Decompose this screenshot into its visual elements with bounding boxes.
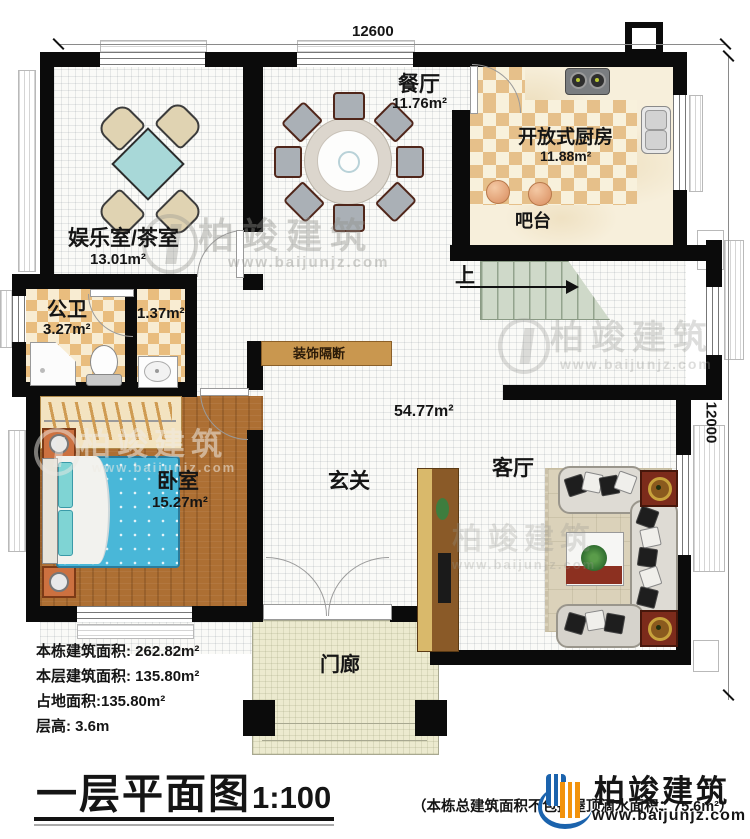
tea-room-left-sill [18,70,36,272]
porch-step-line-2 [262,740,427,741]
bar-stool-1 [486,180,510,204]
info-line-4: 层高: 3.6m [36,719,109,734]
watermark-site-living: www.baijunjz.com [452,558,596,571]
bed-pillow-2 [58,510,73,556]
info-line-1: 本栋建筑面积: 262.82m² [36,644,199,659]
wall-tea-right-corner [243,274,263,290]
plan-title: 一层平面图 [36,774,251,815]
stairs-up-label: 上 [455,266,475,286]
wall-living-bottom [437,650,691,665]
anteroom-area: 1.37m² [137,306,185,321]
bath-door-leaf [90,289,134,297]
wall-stair-bay-a [706,240,722,287]
brand-site: www.baijunjz.com [592,808,746,824]
tea-room-label: 娱乐室/茶室 [68,228,179,249]
stove-burner-right [589,72,606,89]
info-line-2: 本层建筑面积: 135.80m² [36,669,199,684]
title-underline-thick [34,817,334,821]
stove-burner-left [570,72,587,89]
wall-tea-right [243,62,263,232]
porch-step-line-1 [268,723,421,724]
stairs-direction-line [460,286,566,288]
wall-bedroom-bottom-1 [26,606,77,622]
dim-top-line [58,44,726,45]
brand-name: 柏竣建筑 [594,776,730,807]
kitchen-door-leaf [470,66,478,114]
dim-top-value: 12600 [352,24,394,39]
watermark-icon-stairs [498,318,550,374]
watermark-text-stairs: 柏竣建筑 [550,321,714,355]
kitchen-right-sill [689,95,703,192]
tea-room-area: 13.01m² [90,252,146,267]
cabinet-tv [438,553,451,603]
dining-table-center [338,151,360,173]
dining-chair-w [274,146,302,178]
porch-floor [252,620,439,755]
dining-chair-e [396,146,424,178]
watermark-text-hall: 柏竣建筑 [198,218,374,254]
living-right-sill [693,425,725,572]
bath-label: 公卫 [47,300,87,320]
watermark-text-living: 柏竣建筑 [452,525,596,555]
wall-bar-bottom [450,245,722,261]
dim-right-line [728,56,729,700]
window-top-1 [100,52,205,67]
floor-plan: 装饰隔断 上 [0,0,750,839]
dim-right-value: 12000 [703,402,718,444]
sofa-bench-pillow-3 [603,612,625,634]
shower-drain [40,368,45,373]
bedroom-bottom-sill [77,624,194,639]
brand-logo-icon [538,774,590,824]
decor-partition-label: 装饰隔断 [293,347,345,360]
hall-label: 玄关 [328,471,370,492]
bath-area: 3.27m² [43,322,91,337]
sofa-right-pillow-2 [639,526,662,549]
stairs-arrow-head [566,280,579,294]
porch-label: 门廊 [320,655,360,675]
bedroom-left-sill [8,430,26,552]
nightstand-bottom-lamp [49,572,69,592]
plan-scale: 1:100 [252,782,331,813]
logo-block-orange [560,782,580,818]
side-table-bottom [640,610,678,647]
watermark-site-stairs: www.baijunjz.com [560,357,713,371]
watermark-site-hall: www.baijunjz.com [228,255,389,270]
window-bath-left [12,296,26,342]
cabinet-plant [436,498,449,520]
living-corner-sill [693,640,719,672]
window-living-right [676,455,691,555]
porch-column-right [415,700,447,736]
wall-bath-step-top [12,274,197,289]
kitchen-label: 开放式厨房 [518,128,613,147]
chimney-inner [632,28,656,49]
bar-label: 吧台 [515,212,551,230]
living-label: 客厅 [492,458,534,479]
watermark-text-bedroom: 柏竣建筑 [80,429,228,460]
dining-area: 11.76m² [392,96,447,111]
porch-column-left [243,700,275,736]
side-table-top [640,470,678,507]
watermark-icon-bedroom [34,428,80,476]
window-top-2 [297,52,413,67]
dining-label: 餐厅 [398,74,440,95]
window-bedroom-bottom [77,606,192,622]
window-kitchen-right [673,95,687,190]
wall-left-tea [40,52,54,278]
vanity-drain [155,369,159,373]
bedroom-label: 卧室 [157,471,199,492]
wall-kitchen-right-b [673,190,687,245]
kitchen-sink-basin-1 [645,110,667,130]
title-underline-thin [34,824,334,826]
bar-stool-2 [528,182,552,206]
living-area: 54.77m² [394,404,454,420]
wall-bedroom-right [247,430,263,622]
dining-chair-n [333,92,365,120]
wall-bedroom-left [26,382,40,622]
toilet-base [86,374,122,386]
kitchen-area: 11.88m² [540,149,591,163]
wall-anteroom-right [185,289,197,397]
bedroom-door-leaf [200,388,249,396]
bedroom-area: 15.27m² [152,495,208,510]
wall-kitchen-right-a [673,52,687,95]
info-line-3: 占地面积:135.80m² [36,694,165,709]
wall-living-right-a [676,398,691,455]
wall-living-right-b [676,555,691,665]
wall-kitchen-left [452,110,470,260]
kitchen-sink-basin-2 [645,130,667,150]
wall-bath-left-a [12,274,26,296]
stair-bay-sill [724,240,744,360]
